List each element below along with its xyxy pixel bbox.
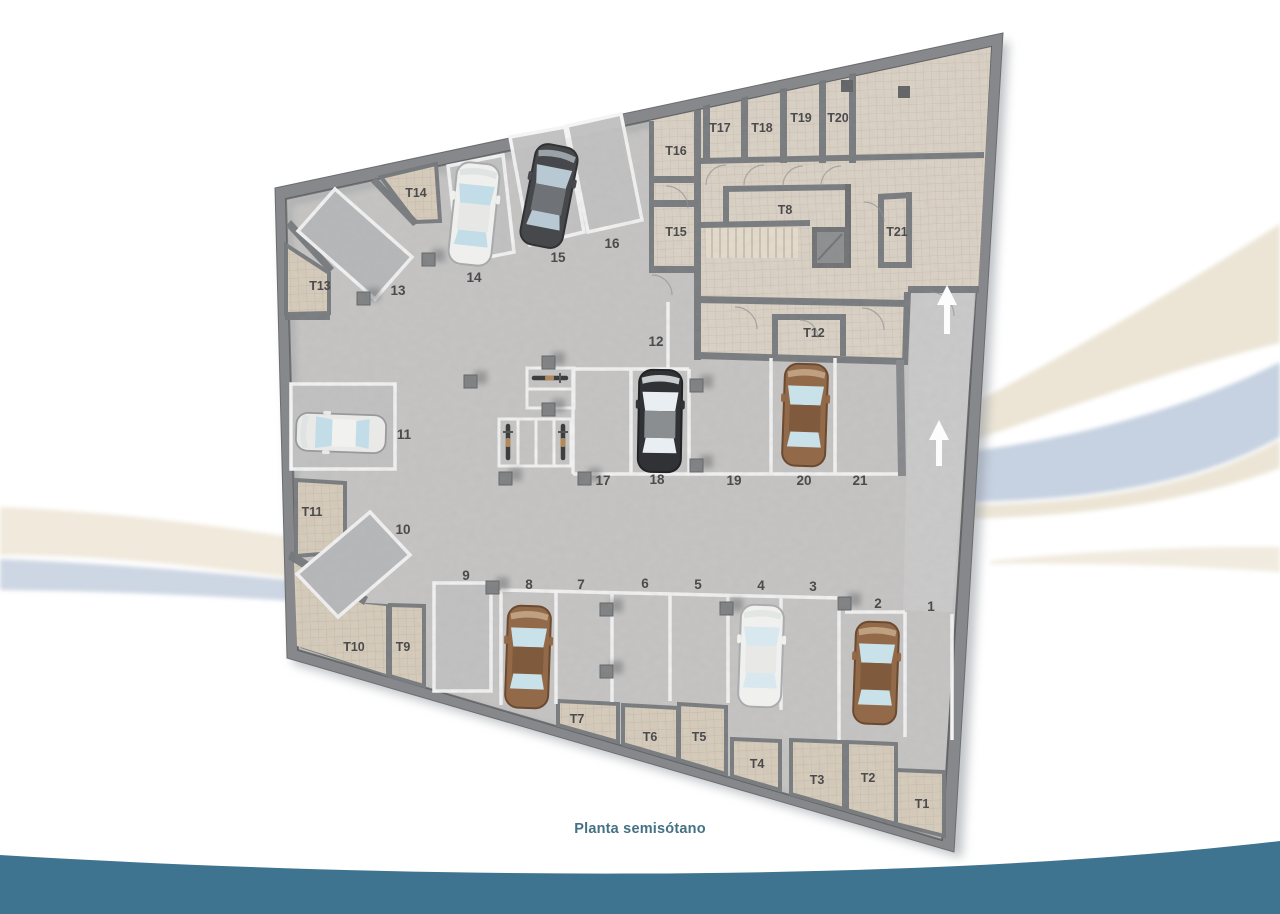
svg-text:5: 5 [694,577,702,592]
svg-text:T17: T17 [709,121,731,135]
svg-text:T3: T3 [810,773,825,787]
svg-text:12: 12 [648,334,663,349]
svg-text:T10: T10 [343,640,365,654]
svg-text:T11: T11 [302,505,323,519]
svg-text:T1: T1 [915,797,930,811]
svg-text:Planta semisótano: Planta semisótano [574,821,706,837]
svg-text:6: 6 [641,576,649,591]
svg-text:T13: T13 [309,279,331,293]
svg-text:11: 11 [397,427,412,442]
svg-text:T16: T16 [665,144,687,158]
svg-text:10: 10 [395,522,410,537]
svg-text:21: 21 [852,473,868,488]
svg-text:T12: T12 [803,326,825,340]
svg-text:T14: T14 [405,186,427,200]
svg-text:14: 14 [466,270,482,285]
svg-text:T18: T18 [751,121,773,135]
svg-text:2: 2 [874,596,882,611]
svg-text:1: 1 [927,599,935,614]
svg-text:3: 3 [809,579,817,594]
svg-text:T5: T5 [692,730,707,744]
svg-text:T8: T8 [778,203,793,217]
svg-text:16: 16 [604,236,620,251]
svg-text:18: 18 [649,472,665,487]
svg-text:17: 17 [595,473,610,488]
svg-text:T21: T21 [886,225,908,239]
svg-text:8: 8 [525,577,533,592]
svg-text:9: 9 [462,568,470,583]
svg-text:4: 4 [757,578,765,593]
svg-text:T19: T19 [790,111,812,125]
svg-text:19: 19 [726,473,741,488]
svg-text:15: 15 [550,250,566,265]
svg-text:13: 13 [390,283,406,298]
svg-text:T15: T15 [665,225,687,239]
svg-text:T6: T6 [643,730,658,744]
svg-text:20: 20 [796,473,811,488]
svg-text:T7: T7 [570,712,585,726]
svg-text:T4: T4 [750,757,765,771]
svg-text:T20: T20 [827,111,849,125]
svg-text:T2: T2 [861,771,876,785]
svg-text:7: 7 [577,577,585,592]
svg-text:T9: T9 [396,640,411,654]
